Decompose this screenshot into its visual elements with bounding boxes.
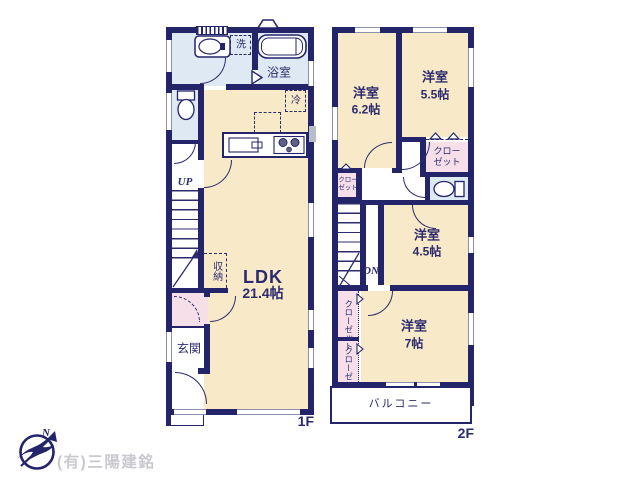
closet-mid-left-label: クローゼット [338, 177, 358, 194]
louver-window-icon [196, 26, 228, 35]
vent-icon [257, 19, 279, 29]
window [166, 332, 172, 362]
closet-door-marker-icon [447, 132, 460, 140]
entrance-label: 玄関 [177, 342, 201, 355]
window [468, 237, 474, 253]
wall [172, 288, 228, 293]
wall [392, 168, 396, 173]
window [332, 107, 338, 140]
room-45-name: 洋室 [414, 229, 440, 244]
room-7-size: 7帖 [405, 337, 424, 350]
wall [360, 203, 366, 291]
room-62-size: 6.2帖 [352, 103, 381, 116]
north-label: N [41, 427, 51, 439]
wall [198, 84, 204, 160]
window [237, 409, 300, 415]
wall [198, 368, 210, 374]
window [308, 310, 314, 330]
ldk-size-label: 21.4帖 [242, 286, 283, 302]
company-name: (有)三陽建銘 [57, 450, 155, 472]
refrigerator-label: 冷 [291, 95, 301, 106]
kitchen-counter-icon [222, 132, 308, 158]
window [308, 348, 314, 368]
room-7-name: 洋室 [401, 320, 427, 335]
stairs-up-label: UP [178, 176, 193, 188]
porch-step [166, 415, 204, 426]
sink-vanity-icon [194, 35, 231, 58]
closet-right-label: クローゼット [432, 146, 462, 169]
stairs-diagonal [172, 248, 198, 288]
ldk-name-label: LDK [243, 267, 283, 287]
closet-low-upper-label: クローゼット [343, 300, 353, 329]
room-62-name: 洋室 [353, 87, 379, 102]
wall [390, 285, 474, 291]
window [166, 40, 172, 72]
window [355, 27, 380, 33]
window [308, 203, 314, 237]
room-45-size: 4.5帖 [413, 245, 442, 258]
window [308, 61, 314, 86]
meter-box-icon [309, 126, 316, 142]
storage-label: 収納 [210, 261, 221, 281]
floor2-label: 2F [458, 426, 474, 442]
wall [204, 324, 210, 372]
wall [172, 326, 204, 328]
toilet-icon [433, 180, 466, 198]
window [166, 93, 172, 130]
folding-door-icon [251, 70, 263, 85]
toilet-icon [175, 90, 197, 122]
floorplan-canvas: 収納 UP [0, 0, 640, 480]
closet-door-marker-icon [340, 163, 352, 170]
closet-door-marker-icon [356, 343, 364, 355]
bathtub-icon [257, 34, 307, 59]
closet-door-marker-icon [429, 132, 442, 140]
wall [425, 177, 430, 200]
stairs-diagonal [338, 250, 360, 288]
laundry-label: 洗 [236, 39, 246, 50]
room-55-name: 洋室 [422, 71, 448, 86]
window [413, 27, 447, 33]
window [468, 313, 474, 345]
stairs-down-label: DN [363, 265, 379, 277]
floor1-label: 1F [298, 414, 314, 430]
closet-low-lower-label: クローゼット [343, 347, 353, 376]
balcony-label: バルコニー [369, 398, 434, 410]
bath-label: 浴室 [267, 66, 291, 79]
closet-door-marker-icon [356, 293, 364, 305]
room-55-size: 5.5帖 [421, 88, 450, 101]
window [468, 48, 474, 87]
cupboard-space [254, 112, 281, 133]
